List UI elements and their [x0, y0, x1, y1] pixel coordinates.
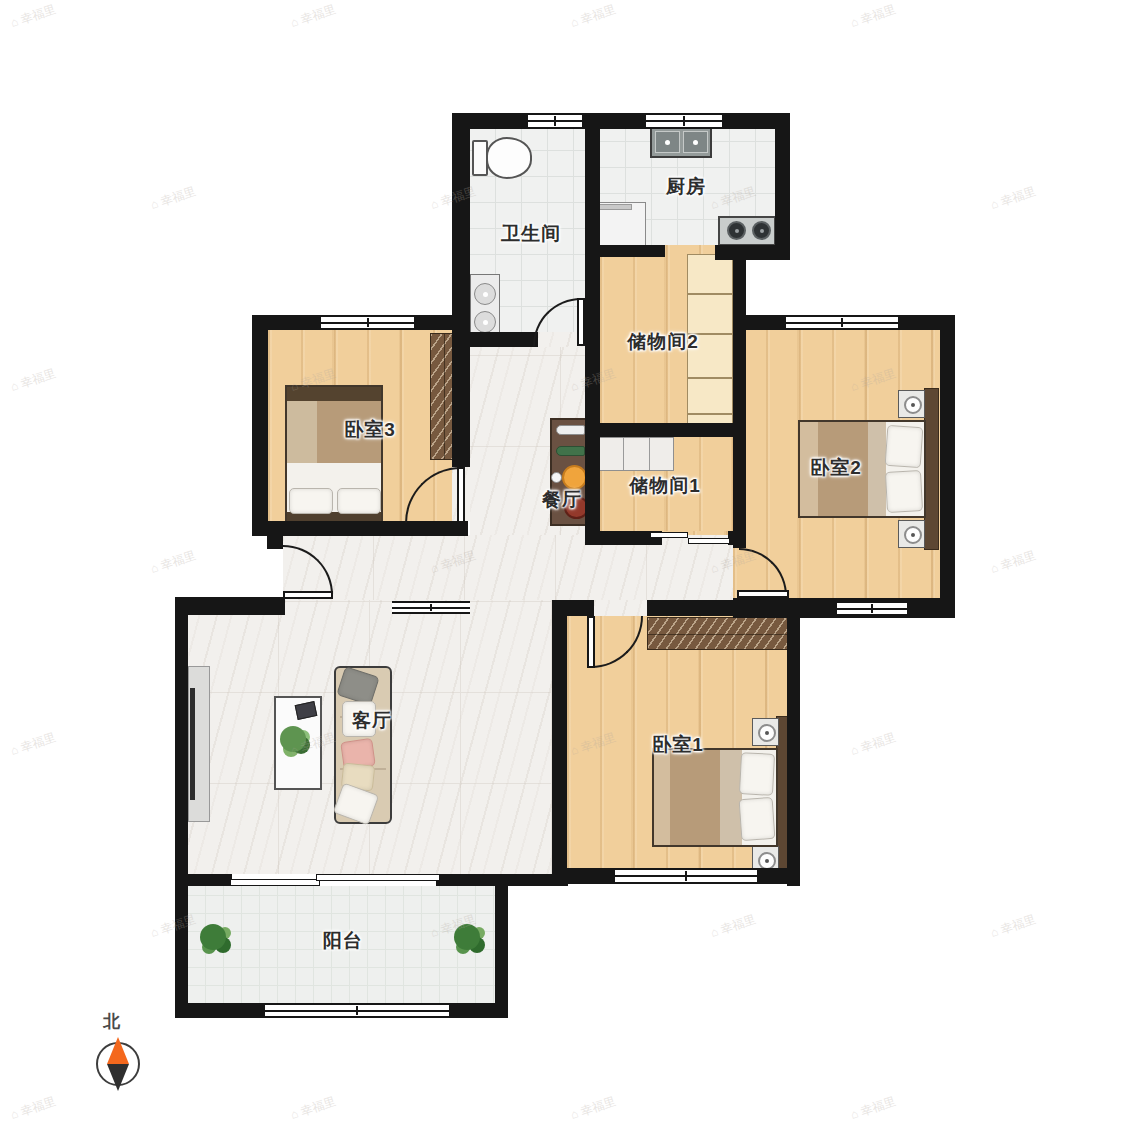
wall	[715, 245, 790, 260]
watermark-logo: ⌂ 幸福里	[289, 1093, 339, 1124]
cup	[551, 472, 562, 483]
wall	[188, 874, 232, 886]
bedroom2-nightstand-top	[898, 390, 925, 418]
room-label-bedroom1: 卧室1	[652, 732, 704, 758]
entry-door-leaf	[283, 591, 333, 599]
shelf-divider	[688, 293, 732, 295]
wall	[452, 332, 538, 347]
wall	[585, 113, 600, 545]
cabinet-divider	[649, 438, 650, 470]
refrigerator-top-panel	[598, 204, 632, 210]
bedroom2-headboard	[924, 388, 939, 550]
room-label-bathroom: 卫生间	[501, 221, 561, 247]
wardrobe-divider	[444, 334, 445, 459]
room-label-storage1: 储物间1	[629, 473, 701, 499]
wall	[252, 521, 468, 536]
watermark-logo: ⌂ 幸福里	[149, 547, 199, 578]
bedroom1-door-leaf	[587, 616, 595, 668]
balcony-window	[265, 1003, 449, 1018]
window-tick	[554, 116, 556, 125]
shelf-divider	[688, 413, 732, 415]
bedroom3-door-leaf	[457, 467, 465, 523]
vanity-sink-1	[474, 283, 496, 305]
balcony-slider-panel	[230, 879, 320, 886]
watermark-logo: ⌂ 幸福里	[709, 911, 759, 942]
window-tick	[683, 116, 685, 125]
lamp-icon	[904, 396, 922, 414]
watermark-logo: ⌂ 幸福里	[289, 1, 339, 32]
bed-blanket	[287, 401, 317, 463]
wall	[585, 423, 746, 437]
tv	[190, 688, 195, 800]
kitchen-window	[646, 113, 722, 129]
wall	[728, 531, 746, 545]
compass-needle-north	[107, 1037, 129, 1064]
wall	[175, 597, 188, 1018]
window-tick	[685, 871, 687, 880]
watermark-logo: ⌂ 幸福里	[989, 183, 1039, 214]
pillow	[885, 425, 924, 468]
bedroom3-window	[321, 315, 414, 330]
watermark-logo: ⌂ 幸福里	[9, 365, 59, 396]
corridor-beam-opening	[392, 601, 470, 614]
table-flowers	[280, 726, 306, 752]
watermark-logo: ⌂ 幸福里	[849, 1093, 899, 1124]
storage1-slider-panel	[688, 538, 730, 544]
lamp-icon	[904, 526, 922, 544]
balcony-plant-left	[200, 924, 226, 950]
bedroom2-window-top	[786, 315, 898, 330]
wall	[252, 315, 268, 536]
watermark-logo: ⌂ 幸福里	[569, 1093, 619, 1124]
stove-burner-right	[752, 221, 771, 240]
wall	[552, 600, 567, 886]
room-label-bedroom2: 卧室2	[810, 455, 862, 481]
wine-bottle-green	[556, 446, 585, 456]
bedroom1-wardrobe	[647, 617, 788, 650]
wine-bottle-white	[556, 425, 585, 435]
watermark-logo: ⌂ 幸福里	[989, 547, 1039, 578]
bedroom1-nightstand-top	[752, 718, 779, 746]
shelf-divider	[688, 377, 732, 379]
balcony-plant-right	[454, 924, 480, 950]
bed-blanket	[654, 750, 670, 845]
bed-blanket	[868, 422, 886, 516]
watermark-logo: ⌂ 幸福里	[849, 729, 899, 760]
watermark-logo: ⌂ 幸福里	[9, 1093, 59, 1124]
wall	[267, 532, 283, 549]
room-label-bedroom3: 卧室3	[344, 417, 396, 443]
window-tick	[430, 604, 432, 611]
room-label-storage2: 储物间2	[627, 329, 699, 355]
room-label-kitchen: 厨房	[666, 174, 706, 200]
wall	[940, 315, 955, 618]
bed-footboard	[287, 387, 381, 401]
balcony-slider-panel	[316, 874, 440, 881]
pillow	[739, 797, 776, 841]
wardrobe-divider	[648, 634, 787, 635]
watermark-logo: ⌂ 幸福里	[149, 183, 199, 214]
cabinet-divider	[623, 438, 624, 470]
watermark-logo: ⌂ 幸福里	[849, 1, 899, 32]
room-label-balcony: 阳台	[323, 928, 363, 954]
wall	[452, 113, 470, 467]
bedroom2-door-leaf	[737, 590, 789, 598]
kitchen-sink-basin-left	[655, 131, 680, 153]
window-tick	[356, 1006, 358, 1014]
wall	[175, 597, 285, 615]
wall	[585, 245, 665, 257]
bed-blanket	[670, 750, 720, 845]
compass-needle-south	[107, 1064, 129, 1091]
room-label-dining: 餐厅	[542, 487, 582, 513]
corridor-floor	[283, 535, 733, 600]
stove-burner-left	[727, 221, 746, 240]
storage1-cabinet	[596, 437, 674, 471]
wall	[495, 880, 508, 1016]
watermark-logo: ⌂ 幸福里	[989, 911, 1039, 942]
window-tick	[367, 318, 369, 326]
room-label-living: 客厅	[352, 708, 392, 734]
bathroom-door-leaf	[577, 298, 585, 346]
watermark-logo: ⌂ 幸福里	[9, 1, 59, 32]
lamp-icon	[758, 724, 776, 742]
bedroom1-doorway-floor	[594, 600, 647, 616]
pillow	[337, 488, 381, 514]
vanity-sink-2	[474, 311, 496, 333]
wall	[733, 330, 746, 548]
window-tick	[871, 604, 873, 612]
toilet-bowl	[486, 137, 532, 179]
pillow	[289, 488, 333, 514]
bathroom-window	[528, 113, 582, 129]
compass-north-label: 北	[103, 1010, 121, 1033]
bedroom2-window-bottom	[837, 601, 907, 616]
kitchen-sink-basin-right	[683, 131, 708, 153]
watermark-logo: ⌂ 幸福里	[9, 729, 59, 760]
pillow	[739, 752, 775, 796]
wall	[775, 113, 790, 260]
pillow	[885, 470, 923, 513]
window-tick	[841, 318, 843, 326]
bedroom1-window	[615, 868, 757, 884]
watermark-logo: ⌂ 幸福里	[569, 1, 619, 32]
bedroom2-nightstand-bottom	[898, 520, 925, 548]
wall	[452, 113, 790, 129]
wall	[787, 600, 800, 886]
floor-plan: 卫生间 厨房 储物间2 储物间1 卧室3 卧室2 卧室1 餐厅 客厅 阳台 北 …	[0, 0, 1125, 1125]
bed-blanket	[720, 750, 742, 845]
storage1-slider-panel	[650, 532, 688, 538]
